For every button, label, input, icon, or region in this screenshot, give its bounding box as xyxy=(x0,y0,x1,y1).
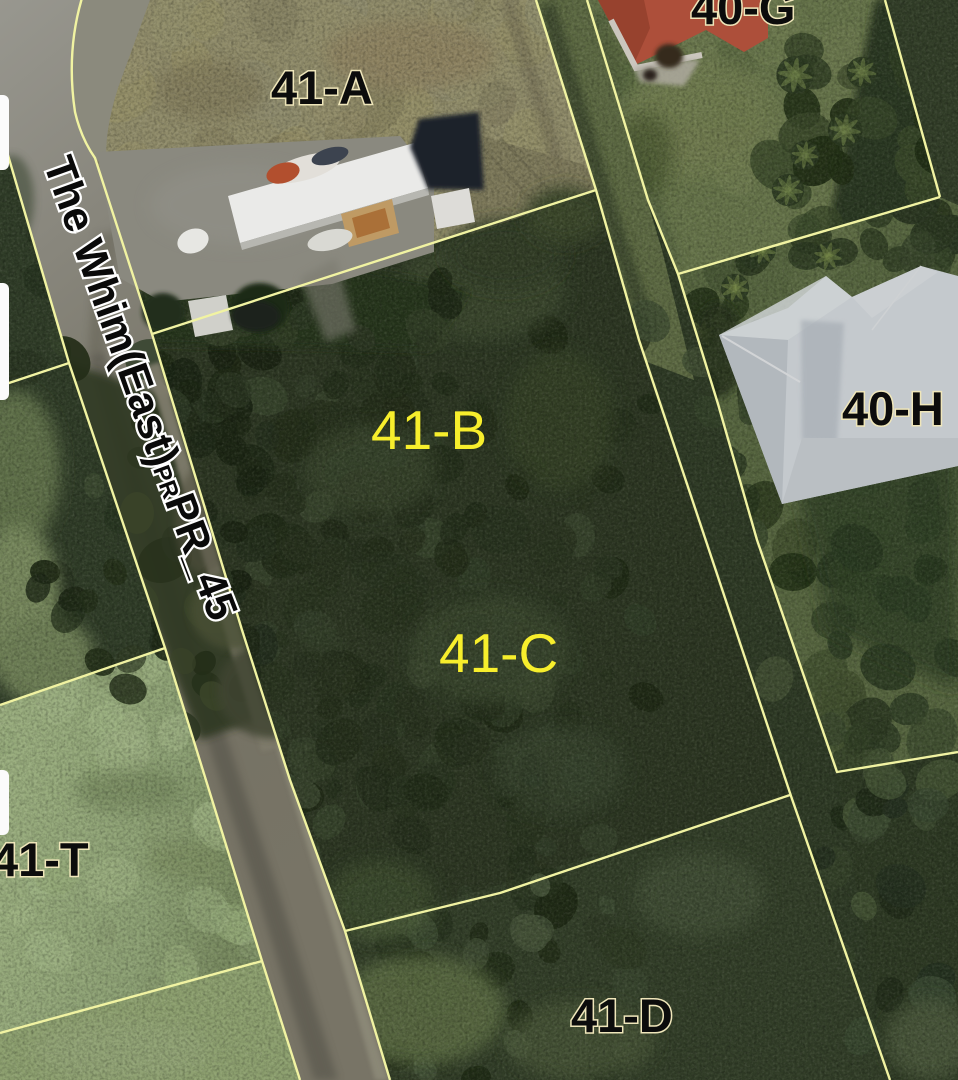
svg-text:41-C: 41-C xyxy=(439,622,558,684)
svg-text:40-G: 40-G xyxy=(691,0,796,34)
svg-text:41-A: 41-A xyxy=(271,61,373,114)
svg-text:40-H: 40-H xyxy=(842,382,944,435)
svg-text:41-B: 41-B xyxy=(371,399,487,461)
svg-text:41-D: 41-D xyxy=(571,989,673,1042)
svg-text:41-T: 41-T xyxy=(0,833,89,886)
